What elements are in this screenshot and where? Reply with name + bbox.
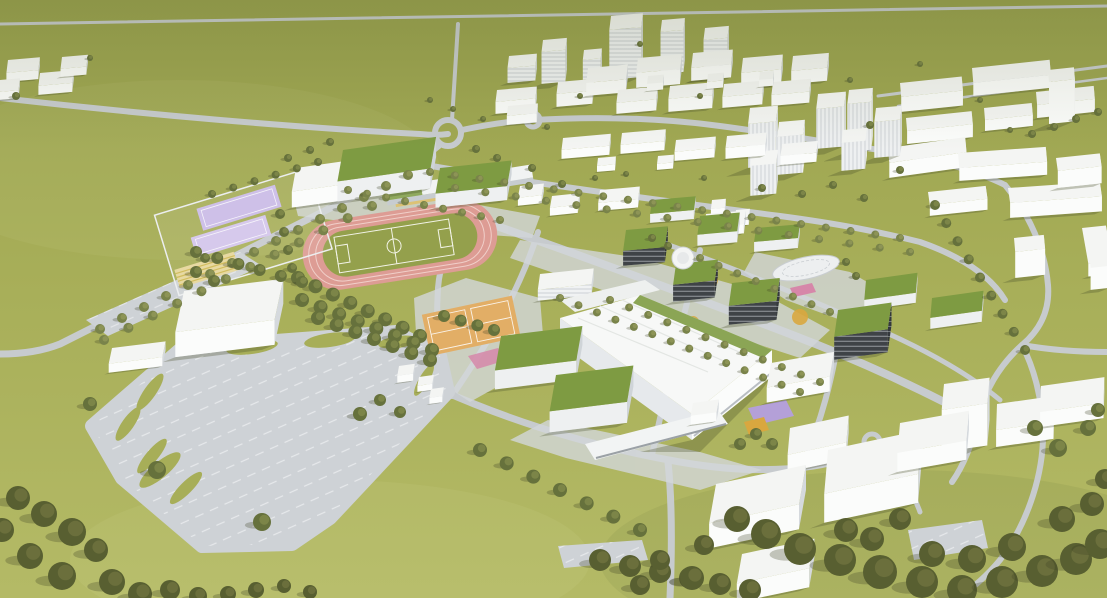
architectural-rendering xyxy=(0,0,1107,598)
masterplan-scene xyxy=(0,0,1107,598)
vignette-overlay xyxy=(0,0,1107,598)
